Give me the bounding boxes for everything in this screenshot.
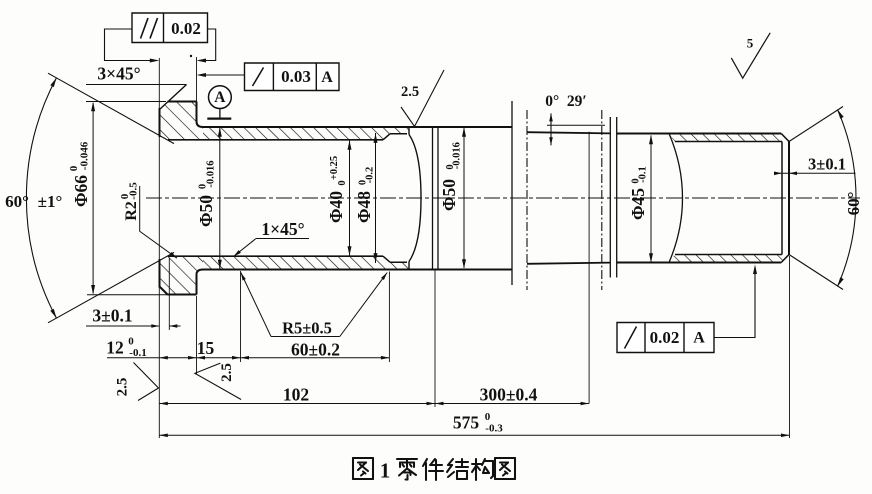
svg-text:0.03: 0.03 — [281, 67, 311, 86]
svg-text:R2: R2 — [123, 201, 140, 221]
svg-text:Φ50: Φ50 — [196, 195, 216, 227]
svg-text:A: A — [214, 89, 226, 106]
svg-text:Φ45: Φ45 — [628, 188, 648, 220]
svg-text:3±0.1: 3±0.1 — [92, 306, 132, 326]
svg-text:-0.046: -0.046 — [78, 141, 90, 170]
svg-text:R5±0.5: R5±0.5 — [282, 318, 332, 337]
svg-text:575: 575 — [453, 413, 480, 433]
svg-text:60°: 60° — [844, 192, 863, 216]
svg-text:3×45°: 3×45° — [97, 64, 140, 84]
svg-text:-0.1: -0.1 — [638, 166, 649, 183]
svg-text:-0.016: -0.016 — [452, 142, 463, 169]
svg-text:0: 0 — [337, 180, 348, 185]
svg-text:300±0.4: 300±0.4 — [480, 385, 538, 405]
svg-text:-0.016: -0.016 — [206, 160, 217, 187]
svg-text:3±0.1: 3±0.1 — [808, 154, 846, 173]
svg-text:Φ40: Φ40 — [326, 191, 346, 223]
svg-text:60°: 60° — [5, 192, 29, 211]
svg-text:102: 102 — [283, 384, 309, 404]
svg-text:Φ50: Φ50 — [439, 179, 459, 211]
svg-text:Φ66: Φ66 — [71, 175, 91, 207]
svg-text:12: 12 — [106, 338, 124, 358]
svg-text:±1°: ±1° — [38, 192, 63, 211]
svg-text:1: 1 — [380, 458, 391, 482]
svg-text:1×45°: 1×45° — [261, 219, 304, 239]
svg-text:-0.2: -0.2 — [365, 167, 376, 184]
svg-text:Φ48: Φ48 — [354, 191, 374, 223]
svg-text:-0.1: -0.1 — [129, 347, 146, 359]
svg-text:0.02: 0.02 — [171, 19, 201, 38]
svg-text:A: A — [321, 69, 333, 86]
svg-text:0° 29′: 0° 29′ — [545, 93, 587, 110]
svg-text:5: 5 — [747, 36, 754, 51]
svg-text:-0.5: -0.5 — [127, 182, 139, 200]
svg-text:-0.3: -0.3 — [485, 422, 503, 434]
svg-text:2.5: 2.5 — [115, 378, 131, 397]
svg-text:0.02: 0.02 — [650, 328, 680, 347]
svg-text:15: 15 — [197, 338, 215, 358]
svg-text:2.5: 2.5 — [219, 363, 235, 382]
svg-text:A: A — [693, 330, 705, 347]
svg-text:+0.25: +0.25 — [329, 156, 340, 180]
svg-text:2.5: 2.5 — [401, 84, 419, 100]
svg-text:0: 0 — [485, 411, 491, 423]
svg-text:60±0.2: 60±0.2 — [291, 340, 340, 360]
svg-text:0: 0 — [128, 335, 134, 347]
